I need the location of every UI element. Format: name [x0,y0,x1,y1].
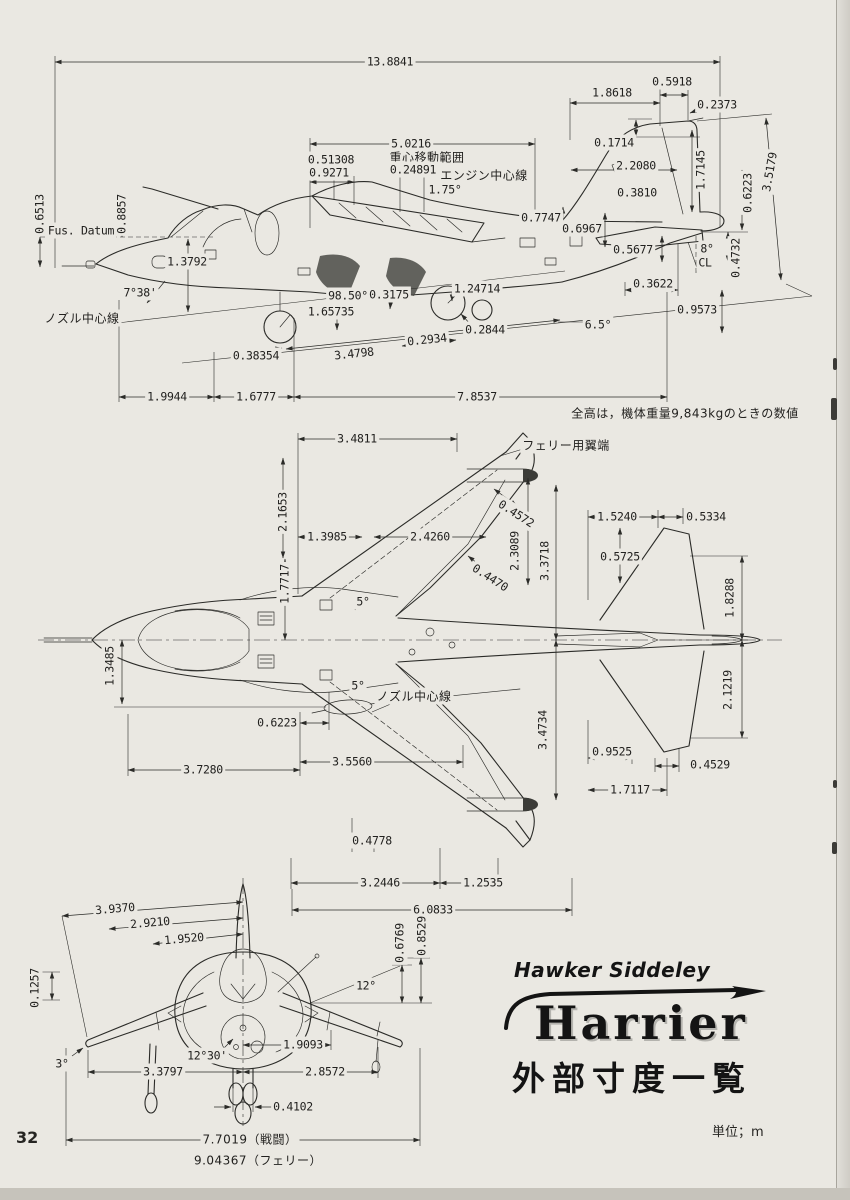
dimension-label: 0.3810 [615,185,659,201]
svg-text:1.2535: 1.2535 [463,876,503,890]
svg-text:0.9271: 0.9271 [309,166,349,180]
svg-text:ノズル中心線: ノズル中心線 [376,689,451,704]
plan-view-labels: 3.4811フェリー用翼端2.16531.39852.42600.45722.3… [102,431,738,918]
dimension-label: 0.4102 [271,1099,315,1115]
svg-text:0.5677: 0.5677 [613,243,653,257]
svg-text:2.8572: 2.8572 [305,1065,345,1079]
svg-text:2.2080: 2.2080 [616,159,656,173]
svg-text:1.8618: 1.8618 [592,86,632,100]
dimension-label: 7.7019（戦闘） [201,1132,300,1148]
dimension-label: 3.5560 [330,754,374,770]
intake [255,211,279,255]
dimension-label: 1.65735 [306,304,356,320]
svg-text:0.9525: 0.9525 [592,745,632,759]
dimension-label: 2.9210 [127,913,172,933]
svg-text:0.4102: 0.4102 [273,1100,313,1114]
dimension-label: 12° [354,978,378,994]
dimension-label: 1.3792 [165,254,209,270]
dimension-label: 3.5179 [758,149,781,195]
svg-text:3.4811: 3.4811 [337,432,377,446]
dimension-label: 3.3797 [141,1064,185,1080]
svg-text:1.5240: 1.5240 [597,510,637,524]
dimension-label: 1.8288 [722,576,738,620]
side-view-labels: 13.88410.59181.86180.23730.17141.71452.2… [32,54,801,422]
svg-text:5°: 5° [351,679,364,693]
svg-text:12°30': 12°30' [187,1049,227,1063]
dimension-label: 0.5677 [611,242,655,258]
dimension-label: 0.6223 [740,171,756,215]
dimension-label: 6.5° [583,317,614,333]
svg-text:Fus. Datum: Fus. Datum [48,224,115,238]
dimension-label: 0.3622 [631,276,675,292]
svg-text:1.8288: 1.8288 [723,578,737,618]
dimension-label: 3° [53,1056,70,1072]
logo-brand-text: Hawker Siddeley [498,958,803,982]
dimension-label: 8° [698,241,715,257]
svg-text:エンジン中心線: エンジン中心線 [440,168,528,183]
svg-text:5°: 5° [356,595,369,609]
svg-text:3.2446: 3.2446 [360,876,400,890]
dimension-label: 2.1219 [720,668,736,712]
dimension-label: 3.9370 [92,899,137,919]
refuel-probe-pod [324,699,373,715]
svg-text:0.4778: 0.4778 [352,834,392,848]
svg-text:98.50°: 98.50° [328,289,368,303]
dimension-label: 0.9525 [590,744,634,760]
scanned-magazine-page: { "page": { "number": "32", "unit_label"… [0,0,850,1200]
svg-text:0.4732: 0.4732 [729,238,743,278]
svg-text:1.7117: 1.7117 [610,783,650,797]
svg-text:0.8529: 0.8529 [415,916,429,956]
svg-text:1.65735: 1.65735 [308,305,354,319]
dimension-label: 0.2373 [695,97,739,113]
refuel-probe [143,187,218,209]
dimension-label: 0.5334 [684,509,728,525]
dimension-label: 1.7117 [608,782,652,798]
svg-text:ノズル中心線: ノズル中心線 [44,311,119,326]
dimension-label: 98.50° [326,288,370,304]
tailplane-upper [600,528,704,629]
svg-text:0.5334: 0.5334 [686,510,726,524]
svg-text:0.3622: 0.3622 [633,277,673,291]
dimension-label: 0.5918 [650,74,694,90]
svg-text:0.5725: 0.5725 [600,550,640,564]
fuselage-starboard [92,640,302,684]
logo-subtitle-text: 外部寸度一覧 [498,1052,803,1100]
dimension-label: 0.4732 [728,236,744,280]
wing-side [312,196,484,242]
svg-text:7°38': 7°38' [123,286,156,300]
svg-text:0.6513: 0.6513 [33,194,47,234]
svg-text:9.04367（フェリー）: 9.04367（フェリー） [194,1154,322,1168]
svg-text:2.1219: 2.1219 [721,670,735,710]
svg-text:3.4734: 3.4734 [536,710,550,750]
dimension-label: エンジン中心線 [438,167,530,184]
fuselage-port [92,596,302,640]
dimension-label: 1.3485 [102,644,118,688]
svg-text:CL: CL [698,256,712,270]
dimension-label: 0.1714 [592,135,636,151]
svg-text:0.2844: 0.2844 [465,323,505,337]
dimension-label: 5° [354,594,371,610]
svg-text:1.3485: 1.3485 [103,646,117,686]
ferry-wingtip-lower [506,821,530,847]
svg-text:1.6777: 1.6777 [236,390,276,404]
svg-text:0.6223: 0.6223 [741,173,755,213]
logo-swoosh-icon [496,986,796,1030]
tailplane-lower [600,651,704,752]
dimension-label: 0.6967 [560,221,604,237]
dimension-label: 0.7747 [519,210,563,226]
svg-text:1.24714: 1.24714 [454,282,501,296]
unit-note: 単位；m [712,1121,764,1140]
svg-text:0.2373: 0.2373 [697,98,737,112]
svg-text:12°: 12° [356,979,376,993]
dimension-label: 0.2934 [404,329,450,350]
dimension-label: ノズル中心線 [42,310,121,327]
svg-text:0.24891: 0.24891 [390,163,437,177]
svg-text:5.0216: 5.0216 [391,137,431,151]
dimension-label: 0.5725 [598,549,642,565]
dimension-label: 1.7717 [277,562,293,606]
svg-text:3.3797: 3.3797 [143,1065,183,1079]
dimension-label: 0.4572 [494,495,539,532]
svg-text:全高は，機体重量9,843kgのときの数値: 全高は，機体重量9,843kgのときの数値 [571,406,798,421]
canopy [171,209,252,247]
page-number: 32 [16,1128,38,1147]
svg-text:フェリー用翼端: フェリー用翼端 [522,439,610,453]
dimension-label: 0.6513 [32,192,48,236]
dimension-label: 0.1257 [27,966,43,1010]
svg-text:0.6223: 0.6223 [257,716,297,730]
dimension-label: 0.38354 [231,348,282,364]
dimension-label: 1.7145 [693,148,709,192]
refuel-probe [278,957,316,992]
svg-text:0.7747: 0.7747 [521,211,561,225]
dimension-label: 0.9573 [675,302,719,318]
svg-text:0.1257: 0.1257 [28,968,42,1008]
svg-text:1.75°: 1.75° [428,183,461,197]
svg-text:3.7280: 3.7280 [183,763,223,777]
dimension-label: 1.9944 [145,389,189,405]
front-view-art [86,878,403,1126]
dimension-label: CL [696,255,714,271]
dimension-label: 5° [349,678,366,694]
svg-text:3.3718: 3.3718 [538,541,552,581]
svg-text:0.9573: 0.9573 [677,303,717,317]
svg-text:3.5560: 3.5560 [332,755,372,769]
svg-text:7.8537: 7.8537 [457,390,497,404]
svg-text:0.4529: 0.4529 [690,758,730,772]
svg-text:0.5918: 0.5918 [652,75,692,89]
dimension-label: 0.9271 [307,165,351,181]
svg-text:0.6769: 0.6769 [393,923,407,963]
svg-text:0.3175: 0.3175 [369,288,409,302]
dimension-label: 7°38' [121,285,158,301]
svg-text:2.3089: 2.3089 [508,531,522,571]
dimension-label: 1.9520 [161,929,206,949]
dimension-label: 0.4778 [350,833,394,849]
left-wing [86,993,206,1047]
tail-cone [700,212,724,231]
svg-text:6.5°: 6.5° [585,318,612,332]
dimension-label: 0.4529 [688,757,732,773]
svg-text:1.9944: 1.9944 [147,390,187,404]
svg-text:8°: 8° [700,242,713,256]
dimension-label: 0.24891 [388,162,439,178]
svg-text:0.8857: 0.8857 [115,194,129,234]
dimension-label: 0.3175 [367,287,411,303]
dimension-label: ノズル中心線 [374,688,453,705]
svg-text:1.9093: 1.9093 [283,1038,323,1052]
dimension-label: 2.3089 [507,529,523,573]
dimension-label: 0.8529 [414,914,430,958]
front-view-labels: 3.93702.92101.95200.67690.85290.125712°1… [27,899,430,1169]
svg-text:0.1714: 0.1714 [594,136,634,150]
dimension-label: 1.3985 [305,529,349,545]
svg-text:0.38354: 0.38354 [233,349,280,363]
dimension-label: 3.3718 [537,539,553,583]
dimension-label: 1.75° [426,182,463,198]
svg-text:0.51308: 0.51308 [308,153,355,167]
dimension-label: 9.04367（フェリー） [192,1153,324,1169]
dimension-label: 1.2535 [461,875,505,891]
svg-text:0.3810: 0.3810 [617,186,657,200]
dimension-label: 全高は，機体重量9,843kgのときの数値 [569,405,800,422]
dimension-label: 0.4470 [468,559,514,596]
svg-text:3°: 3° [55,1057,68,1071]
svg-text:1.3985: 1.3985 [307,530,347,544]
dimension-label: 0.2844 [463,322,507,338]
dimension-label: 7.8537 [455,389,499,405]
dimension-label: 0.6223 [255,715,299,731]
wing-trailing-edge-upper [396,440,534,616]
svg-text:1.3792: 1.3792 [167,255,207,269]
svg-text:2.1653: 2.1653 [276,492,290,532]
svg-text:13.8841: 13.8841 [367,55,414,69]
svg-text:1.7717: 1.7717 [278,564,292,604]
svg-text:7.7019（戦闘）: 7.7019（戦闘） [203,1133,298,1147]
dimension-label: 12°30' [185,1048,229,1064]
dimension-label: 1.24714 [452,281,503,297]
svg-text:2.4260: 2.4260 [410,530,450,544]
dimension-label: 3.4811 [335,431,379,447]
dimension-label: 3.7280 [181,762,225,778]
dimension-label: 3.4734 [535,708,551,752]
svg-text:1.7145: 1.7145 [694,150,708,190]
dimension-label: 1.9093 [281,1037,325,1053]
dimension-label: 2.4260 [408,529,452,545]
dimension-label: 1.8618 [590,85,634,101]
dimension-label: 13.8841 [365,54,416,70]
dimension-label: 1.5240 [595,509,639,525]
dimension-label: 3.2446 [358,875,402,891]
dimension-label: 2.8572 [303,1064,347,1080]
dimension-label: 0.6769 [392,921,408,965]
dimension-label: 1.6777 [234,389,278,405]
svg-text:0.6967: 0.6967 [562,222,602,236]
dimension-label: 2.2080 [614,158,658,174]
logo: Hawker Siddeley Harrier 外部寸度一覧 [498,958,803,1100]
dimension-label: Fus. Datum [46,223,117,239]
dimension-label: フェリー用翼端 [520,438,612,454]
dimension-label: 2.1653 [275,490,291,534]
